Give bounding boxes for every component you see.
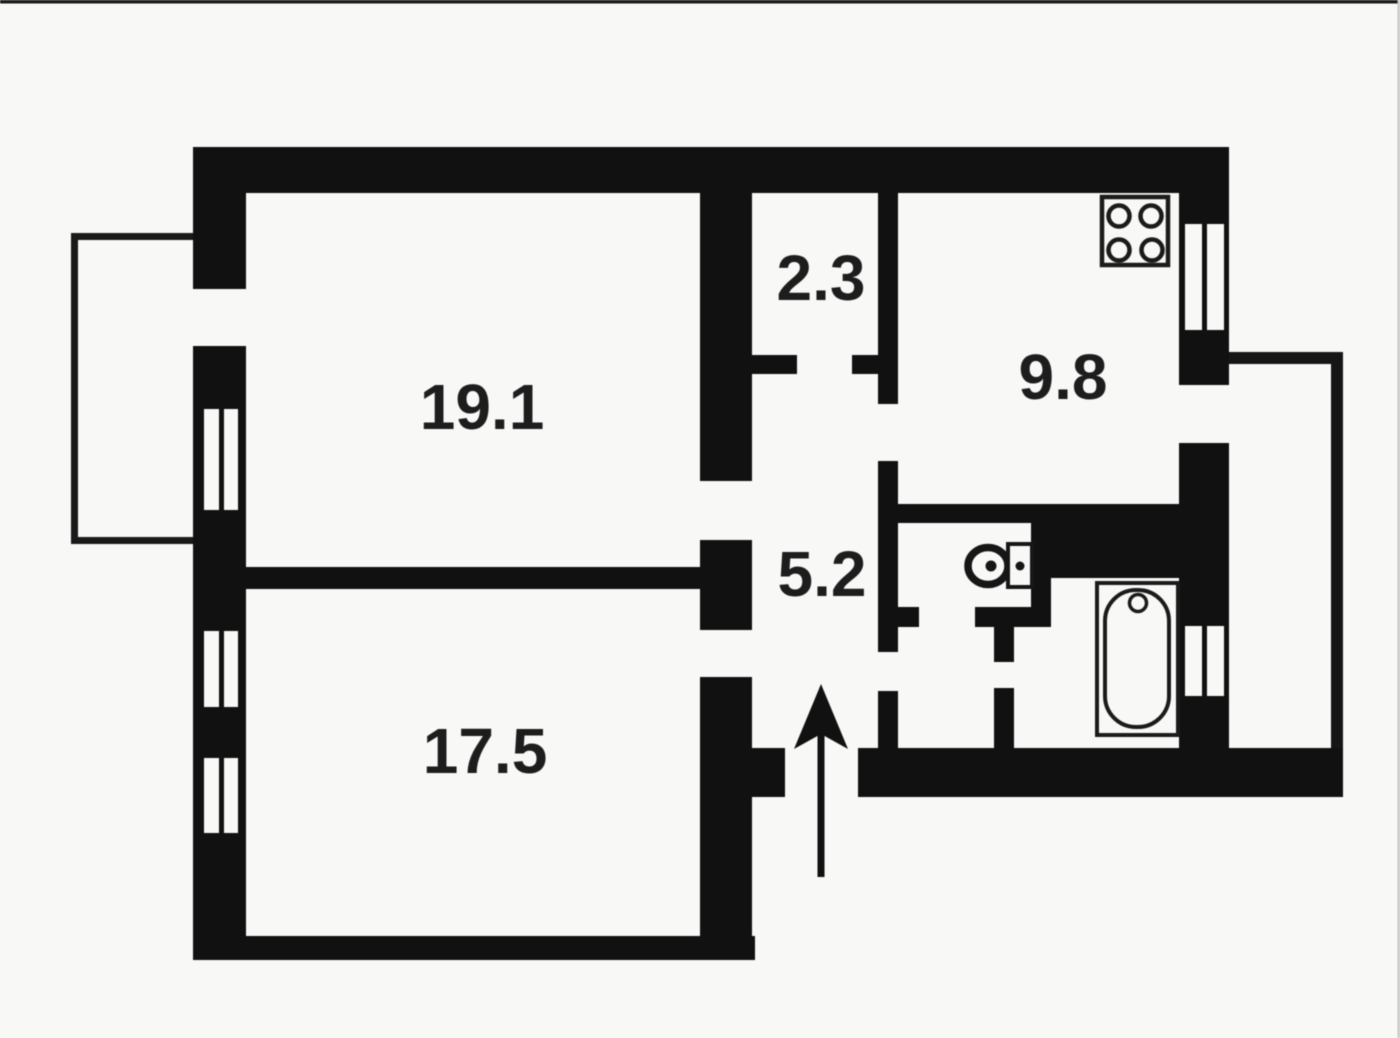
- svg-text:19.1: 19.1: [420, 371, 545, 443]
- svg-text:5.2: 5.2: [778, 538, 867, 610]
- svg-text:9.8: 9.8: [1019, 341, 1108, 413]
- svg-text:2.3: 2.3: [777, 242, 866, 314]
- svg-text:17.5: 17.5: [423, 715, 548, 787]
